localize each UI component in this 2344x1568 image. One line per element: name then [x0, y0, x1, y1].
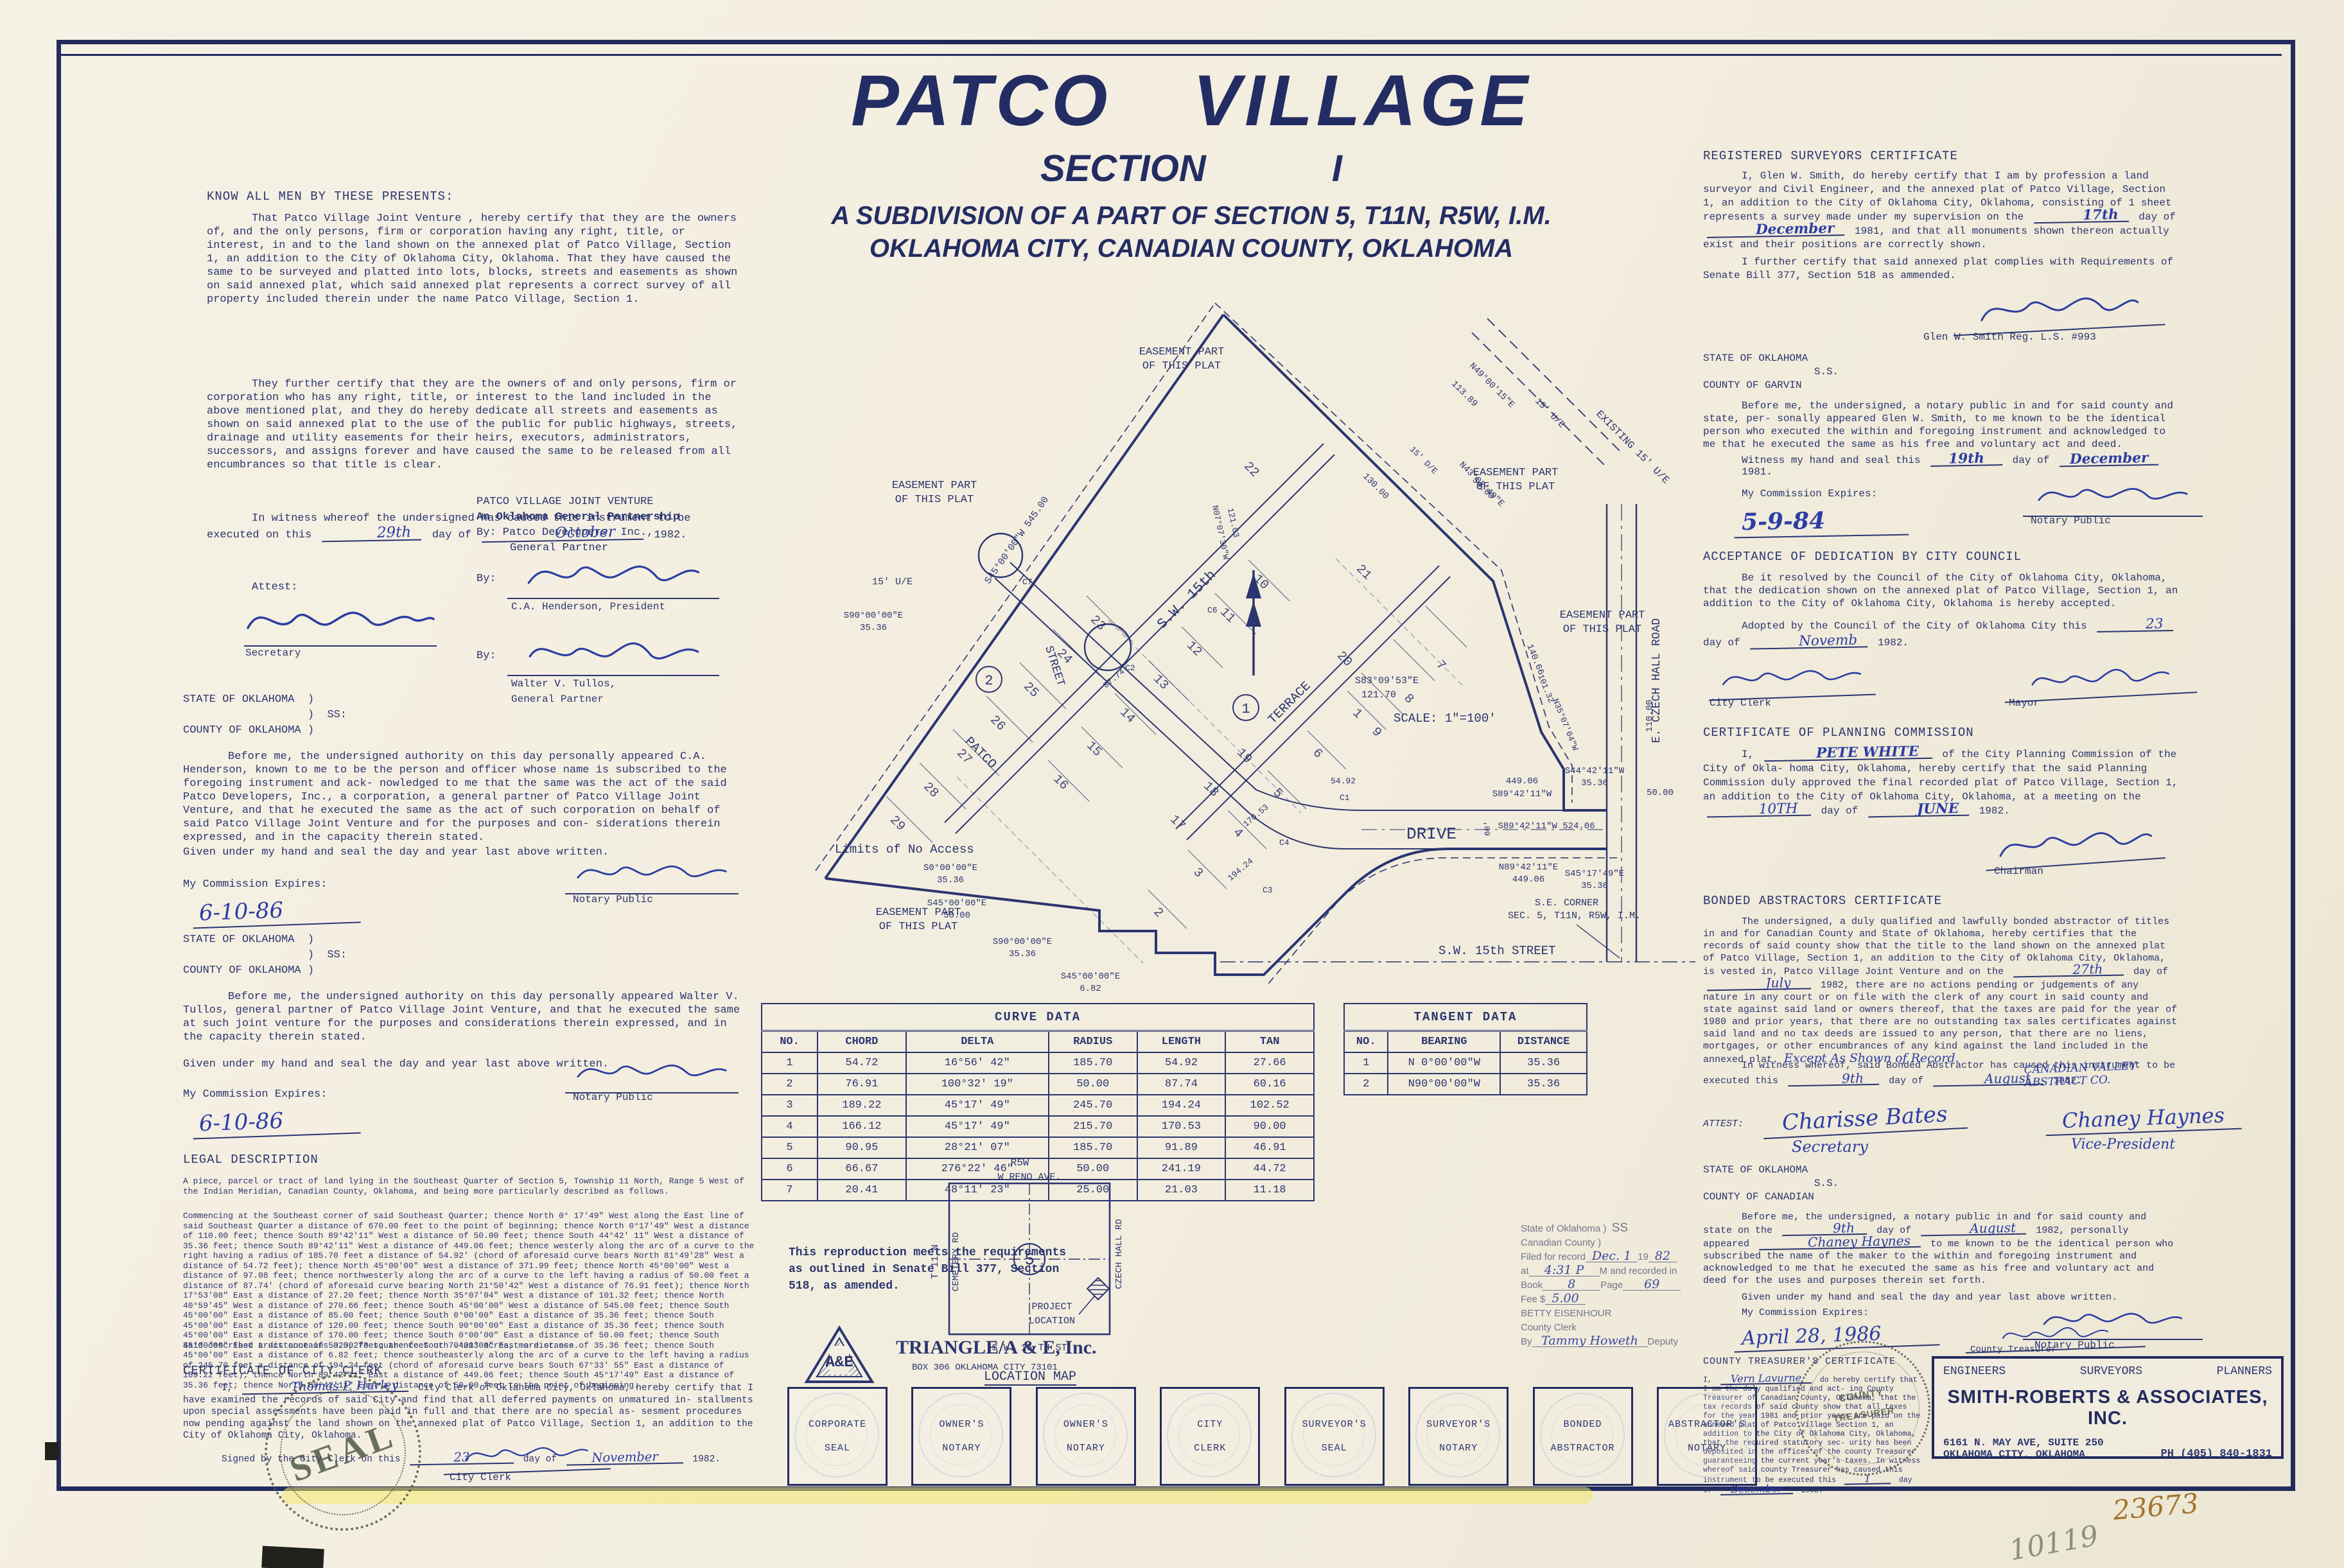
curve-ref: C4: [1279, 838, 1290, 848]
tullos-label-1: Walter V. Tullos,: [511, 678, 616, 690]
bearing-label: S90°00'00"E: [993, 937, 1052, 947]
loc-t11n: T 11 N: [930, 1244, 941, 1279]
notary2-commission-date: 6-10-86: [192, 1105, 361, 1139]
curve-row: 2 76.91 100°32' 19" 50.00 87.74 60.16: [762, 1074, 1314, 1095]
firm-address-1: 6161 N. MAY AVE, SUITE 250: [1943, 1437, 2104, 1449]
plat-subtitle-2: OKLAHOMA CITY, CANADIAN COUNTY, OKLAHOMA: [764, 234, 1618, 263]
easement-label: OF THIS PLAT: [895, 494, 974, 506]
planning-heading: CERTIFICATE OF PLANNING COMMISSION: [1703, 726, 1974, 740]
attest-label: Attest:: [252, 581, 297, 593]
owner-by1: By:: [477, 573, 496, 585]
logo-letters: A&E: [825, 1354, 853, 1372]
notary2-given: Given under my hand and seal the day and…: [183, 1058, 609, 1070]
dim-label: 113.89: [1449, 379, 1479, 409]
sheet-number-pencil: 10119: [2007, 1519, 2101, 1567]
lot-number: 23: [1087, 613, 1108, 634]
firm-box: ENGINEERS SURVEYORS PLANNERS SMITH-ROBER…: [1932, 1356, 2284, 1459]
lot-number: 9: [1369, 724, 1385, 740]
lot-number: 15: [1083, 738, 1105, 760]
dedication-p1: That Patco Village Joint Venture , hereb…: [207, 212, 744, 306]
street-name: DRIVE: [1406, 824, 1456, 844]
dim-label: 6.82: [1080, 984, 1101, 994]
boundary-west: [825, 315, 1223, 878]
lot-lines-west: [886, 596, 1133, 842]
garvin-p: Before me, the undersigned, a notary pub…: [1703, 399, 2178, 451]
curve-row: 3 189.22 45°17' 49" 245.70 194.24 102.52: [762, 1095, 1314, 1116]
se-corner-leader: [1577, 925, 1620, 958]
bearing-label: S44°42'11"W: [1565, 766, 1625, 776]
garvin-state-block: STATE OF OKLAHOMA S.S. COUNTY OF GARVIN: [1703, 352, 1839, 392]
canadian-month: August: [1921, 1223, 2027, 1237]
ue-label: 15' U/E: [872, 577, 913, 588]
dim-label: 35.36: [860, 623, 887, 633]
easement-label: OF THIS PLAT: [1142, 360, 1221, 372]
abstractor-month: July: [1707, 977, 1811, 991]
council-clerk-signature: [1708, 657, 1876, 701]
faint-stamp: [1282, 1384, 1385, 1486]
surveyor-day: 17th: [2034, 209, 2129, 224]
scale-label: SCALE: 1"=100': [1394, 711, 1496, 726]
north-arrow-head-2: [1246, 601, 1261, 627]
limits-no-access-label: Limits of No Access: [835, 842, 974, 857]
signature-squiggle: [442, 1435, 610, 1470]
garvin-wit-month: December: [2060, 453, 2159, 467]
surveyor-month: December: [1707, 223, 1845, 238]
legal-p1: A piece, parcel or tract of land lying i…: [183, 1176, 758, 1197]
bearing-label: S0°00'00"E: [923, 863, 977, 873]
seal-box: CITY CLERK: [1160, 1387, 1260, 1486]
block-number-2: 2: [984, 673, 993, 689]
curve-table-title: CURVE DATA: [762, 1004, 1314, 1031]
surveyor-p2: I further certify that said annexed plat…: [1703, 256, 2178, 283]
faint-stamp: [1655, 1384, 1758, 1486]
tangent-row: 2 N90°00'00"W 35.36: [1344, 1074, 1587, 1095]
treasurer-name: Vern Lavurne: [1720, 1373, 1812, 1385]
notary1-label: Notary Public: [573, 894, 653, 905]
curve-row: 1 54.72 16°56' 42" 185.70 54.92 27.66: [762, 1052, 1314, 1074]
firm-col-engineers: ENGINEERS: [1943, 1365, 2006, 1378]
canadian-appeared-name: Chaney Haynes: [1759, 1235, 1921, 1251]
garvin-commission: 5-9-84: [1734, 506, 1909, 539]
project-location-marker: [1087, 1278, 1109, 1300]
seal-box: SURVEYOR'S SEAL: [1284, 1387, 1385, 1486]
bearing-label: S45°00'00"E: [927, 898, 986, 909]
curve-ref: C2: [1125, 663, 1135, 673]
tullos-label-2: General Partner: [511, 693, 604, 705]
loc-sw15: S.W. 15 TH ST: [992, 1343, 1067, 1354]
dedication-p2: They further certify that they are the o…: [207, 378, 744, 472]
bearing-label: N35°07'04"W: [1550, 697, 1580, 752]
tullos-signature: [507, 631, 719, 676]
state-county-block-2: STATE OF OKLAHOMA ) ) SS: COUNTY OF OKLA…: [183, 932, 347, 979]
garvin-wit-day: 19th: [1930, 453, 2002, 467]
seal-box-row: CORPORATE SEAL OWNER'S NOTARY OWNER'S NO…: [787, 1387, 1757, 1482]
dim-label: 449.06: [1512, 875, 1544, 885]
surveyor-p1: I, Glen W. Smith, do hereby certify that…: [1703, 170, 2178, 252]
czech-hall-road-label: E. CZECH HALL ROAD: [1650, 618, 1663, 743]
scan-artifact: [261, 1546, 324, 1568]
notary1-signature: [565, 854, 739, 894]
plat-subtitle-section: SECTION I: [764, 147, 1618, 190]
acceptance-adopted: Adopted by the Council of the City of Ok…: [1703, 618, 2178, 651]
seal-box: BONDED ABSTRACTOR: [1533, 1387, 1633, 1486]
location-map-title: LOCATION MAP: [984, 1370, 1076, 1384]
dim-label: 449.06: [1506, 776, 1538, 787]
canadian-p: Before me, the undersigned, a notary pub…: [1703, 1211, 2178, 1287]
planning-day: 10TH: [1707, 803, 1811, 818]
easement-label: OF THIS PLAT: [1563, 623, 1641, 636]
legal-heading: LEGAL DESCRIPTION: [183, 1153, 319, 1167]
lot-number: 16: [1050, 772, 1071, 793]
signature-squiggle: [507, 553, 719, 595]
street-sw15-edges: [945, 444, 1334, 833]
scan-artifact: [45, 1442, 59, 1460]
signature-squiggle: [1708, 657, 1876, 696]
firm-address-2: OKLAHOMA CITY, OKLAHOMA: [1943, 1449, 2104, 1460]
sheet-number-ink: 23673: [2112, 1487, 2200, 1526]
plat-sheet: PATCO VILLAGE SECTION I A SUBDIVISION OF…: [0, 0, 2344, 1568]
lot-number: 17: [1167, 812, 1188, 833]
easement-label: EASEMENT PART: [892, 480, 977, 492]
curve-ref: C3: [1263, 885, 1273, 895]
loc-reno: W RENO AVE.: [997, 1172, 1061, 1183]
firm-col-surveyors: SURVEYORS: [2080, 1365, 2142, 1378]
bearing-label: S90°00'00"E: [844, 611, 903, 621]
loc-project-2: LOCATION: [1029, 1316, 1075, 1327]
garvin-witness: Witness my hand and seal this 19th day o…: [1742, 453, 2191, 478]
signature-squiggle: [565, 854, 739, 890]
planning-p: I, PETE WHITE of the City Planning Commi…: [1703, 747, 2178, 818]
dim-label: 35.36: [937, 875, 964, 885]
legal-p3: Said described tract contains 323,273 sq…: [183, 1341, 758, 1351]
lot-number: 21: [1353, 562, 1374, 583]
garvin-notary-label: Notary Public: [2031, 515, 2111, 527]
canadian-commission-label: My Commission Expires:: [1742, 1307, 1869, 1318]
abstractor-day: 27th: [2013, 964, 2124, 978]
loc-cemetery: CEMETERY RD: [951, 1232, 961, 1291]
dim-label: 35.36: [1581, 881, 1608, 891]
dim-label: 121.70: [1361, 690, 1396, 701]
signature-squiggle: [244, 597, 437, 642]
secretary-label: Secretary: [245, 647, 301, 659]
city-clerk-sig-label: City Clerk: [450, 1472, 511, 1483]
lot-number: 20: [1334, 649, 1355, 670]
bearing-label: S45°00'00"E: [1061, 971, 1120, 982]
lot-number: 22: [1241, 459, 1262, 480]
faint-stamp: [1406, 1384, 1509, 1486]
dim-label: 35.36: [1009, 949, 1036, 959]
abstractor-wit-day: 9th: [1788, 1073, 1879, 1087]
notary2-label: Notary Public: [573, 1092, 653, 1103]
lot-number: 18: [1200, 779, 1221, 800]
tangent-table-title: TANGENT DATA: [1344, 1004, 1587, 1031]
treasurer-sig-label: County Treasurer: [1970, 1345, 2056, 1355]
de-label: 15' D/E: [1408, 444, 1439, 476]
surveyor-heading: REGISTERED SURVEYORS CERTIFICATE: [1703, 149, 1958, 163]
curve-ref: C7: [1022, 577, 1033, 587]
block-number-1: 1: [1241, 701, 1250, 717]
sw15-street-label: S.W. 15th STREET: [1439, 944, 1555, 958]
lot-number: 26: [987, 713, 1008, 734]
dim-label: 50.00: [1647, 788, 1674, 798]
lot-number: 29: [887, 813, 908, 834]
vp-label: Vice-President: [2071, 1137, 2175, 1153]
easement-dashed-ne: [1215, 303, 1572, 803]
bearing-label: N89°42'11"E: [1499, 862, 1558, 873]
dim-label: 121.03: [1225, 507, 1241, 539]
loc-section-number: 5: [1024, 1250, 1035, 1269]
dim-label: 60': [1483, 821, 1492, 836]
title-block: PATCO VILLAGE SECTION I A SUBDIVISION OF…: [764, 59, 1618, 263]
notary1-commission-label: My Commission Expires:: [183, 878, 327, 891]
acceptance-p: Be it resolved by the Council of the Cit…: [1703, 571, 2178, 610]
abstractor-heading: BONDED ABSTRACTORS CERTIFICATE: [1703, 894, 1942, 908]
lot-number: 12: [1184, 638, 1205, 659]
cul-de-sac-2: [1085, 624, 1131, 670]
curve-row: 4 166.12 45°17' 49" 215.70 170.53 90.00: [762, 1116, 1314, 1137]
dim-label: 140.66: [1524, 643, 1546, 677]
state-county-block-1: STATE OF OKLAHOMA ) ) SS: COUNTY OF OKLA…: [183, 692, 347, 738]
lot-number: 7: [1433, 658, 1449, 674]
lot-number: 2: [1150, 905, 1166, 921]
ue-label: 15' U/E: [1532, 396, 1566, 430]
surveyor-sig-label: Glen W. Smith Reg. L.S. #993: [1923, 331, 2096, 343]
notary1-body: Before me, the undersigned authority on …: [183, 750, 748, 844]
se-corner-label: SEC. 5, T11N, R5W, I.M.: [1508, 910, 1641, 921]
plat-title: PATCO VILLAGE: [764, 59, 1618, 142]
treasurer-wit-month: December: [1720, 1485, 1793, 1495]
notary2-commission-label: My Commission Expires:: [183, 1088, 327, 1101]
tangent-data-table: TANGENT DATA NO. BEARING DISTANCE 1 N 0°…: [1343, 1003, 1587, 1095]
owner-by2: By:: [477, 650, 496, 662]
street-edge-2: [995, 578, 1607, 849]
seal-box: OWNER'S NOTARY: [911, 1387, 1011, 1486]
loc-project-1: PROJECT: [1031, 1302, 1072, 1312]
mayor-label: Mayor: [2009, 697, 2040, 709]
street-name: S.W. 15th: [1154, 567, 1220, 632]
curve-ref: C6: [1207, 605, 1218, 615]
notary2-body: Before me, the undersigned authority on …: [183, 990, 748, 1044]
seal-box: CORPORATE SEAL: [787, 1387, 888, 1486]
bearing-label: S89°42'11"W: [1492, 789, 1552, 799]
plat-subtitle-1: A SUBDIVISION OF A PART OF SECTION 5, T1…: [764, 202, 1618, 231]
signature-squiggle: [2023, 476, 2203, 512]
council-clerk-label: City Clerk: [1710, 697, 1771, 709]
faint-stamp: [785, 1384, 888, 1486]
faint-stamp: [909, 1384, 1012, 1486]
acceptance-heading: ACCEPTANCE OF DEDICATION BY CITY COUNCIL: [1703, 550, 2022, 564]
easement-label: EASEMENT PART: [1139, 346, 1225, 358]
lot-number: 28: [920, 780, 941, 801]
notary2-signature: [565, 1053, 739, 1093]
bearing-label: S83°09'53"E: [1355, 675, 1419, 686]
plat-map: 1 2 EASEMENT PART OF THIS PLAT EASEMENT …: [796, 283, 1695, 1002]
easement-label: EASEMENT PART: [1473, 467, 1559, 479]
firm-phone: PH (405) 840-1831: [2161, 1448, 2272, 1460]
canadian-given: Given under my hand and seal the day and…: [1742, 1292, 2117, 1303]
lot-number: 8: [1401, 691, 1417, 707]
henderson-label: C.A. Henderson, President: [511, 601, 665, 613]
faint-stamp: [1531, 1384, 1634, 1486]
lot-number: 11: [1217, 605, 1238, 626]
seal-box: ABSTRACTOR'S NOTARY: [1657, 1387, 1757, 1486]
se-corner-label: S.E. CORNER: [1535, 898, 1598, 909]
signature-squiggle: [565, 1053, 739, 1089]
garvin-commission-label: My Commission Expires:: [1742, 488, 1877, 500]
highlighter-band: [283, 1487, 1593, 1504]
lot-number: 14: [1117, 705, 1138, 726]
easement-label: OF THIS PLAT: [879, 921, 958, 933]
loc-czech: CZECH HALL RD: [1114, 1219, 1124, 1289]
firm-col-planners: PLANNERS: [2217, 1365, 2272, 1378]
easement-label: EASEMENT PART: [1560, 609, 1645, 622]
lot-number: 25: [1020, 679, 1042, 701]
loc-r5w: R5W: [1011, 1157, 1029, 1169]
lot-number: 4: [1230, 825, 1246, 841]
boundary-north: [1223, 315, 1607, 810]
notary1-given: Given under my hand and seal the day and…: [183, 846, 609, 858]
lot-number: 13: [1150, 672, 1171, 693]
tangent-row: 1 N 0°00'00"W 35.36: [1344, 1052, 1587, 1074]
seal-box: SURVEYOR'S NOTARY: [1408, 1387, 1509, 1486]
existing-ue-label: EXISTING 15' U/E: [1593, 408, 1671, 486]
treasurer-wit-day: 1: [1844, 1474, 1891, 1485]
notary1-commission-date: 6-10-86: [192, 894, 361, 928]
canadian-state-block: STATE OF OKLAHOMA S.S. COUNTY OF CANADIA…: [1703, 1163, 1839, 1204]
adopted-month: Novemb: [1750, 634, 1868, 650]
planning-name: PETE WHITE: [1764, 746, 1932, 762]
city-clerk-signature: [442, 1435, 611, 1475]
garvin-notary-signature: [2023, 476, 2203, 517]
chairman-label: Chairman: [1994, 866, 2043, 877]
signature-squiggle: [507, 631, 719, 672]
planning-month: JUNE: [1868, 803, 1970, 818]
bearing-label: S89°42'11"W 524.06: [1498, 821, 1595, 832]
owner-block: PATCO VILLAGE JOINT VENTURE An Oklahoma …: [477, 494, 679, 556]
lot-number: 1: [1349, 706, 1365, 722]
henderson-signature: [507, 553, 719, 599]
abstractor-p1: The undersigned, a duly qualified and la…: [1703, 916, 2178, 1066]
faint-stamp: [1034, 1384, 1137, 1486]
faint-stamp: [1158, 1384, 1261, 1486]
lot-number: 6: [1309, 745, 1325, 762]
frame-inner-line: [61, 54, 2282, 56]
triangle-ae-logo: A&E: [804, 1324, 875, 1386]
attest-sec-label: Secretary: [1792, 1138, 1868, 1156]
curve-ref: C1: [1340, 793, 1350, 803]
adopted-day: 23: [2097, 618, 2174, 632]
dedication-heading: KNOW ALL MEN BY THESE PRESENTS:: [207, 189, 453, 204]
lot-number: 3: [1190, 865, 1206, 881]
dim-label: 50.00: [943, 910, 970, 921]
dim-label: 194.24: [1226, 856, 1255, 883]
dim-label: 54.92: [1331, 776, 1356, 786]
firm-name: SMITH-ROBERTS & ASSOCIATES, INC.: [1934, 1387, 2281, 1429]
witness-day: 29th: [322, 527, 422, 542]
location-map: R5W W RENO AVE. T 11 N CEMETERY RD CZECH…: [930, 1153, 1148, 1409]
attest-heading: ATTEST:: [1703, 1119, 1744, 1129]
bearing-label: S45°17'49"E: [1565, 869, 1624, 879]
seal-box: OWNER'S NOTARY: [1036, 1387, 1136, 1486]
secretary-signature: [244, 597, 437, 647]
dim-label: 35.36: [1581, 778, 1608, 788]
